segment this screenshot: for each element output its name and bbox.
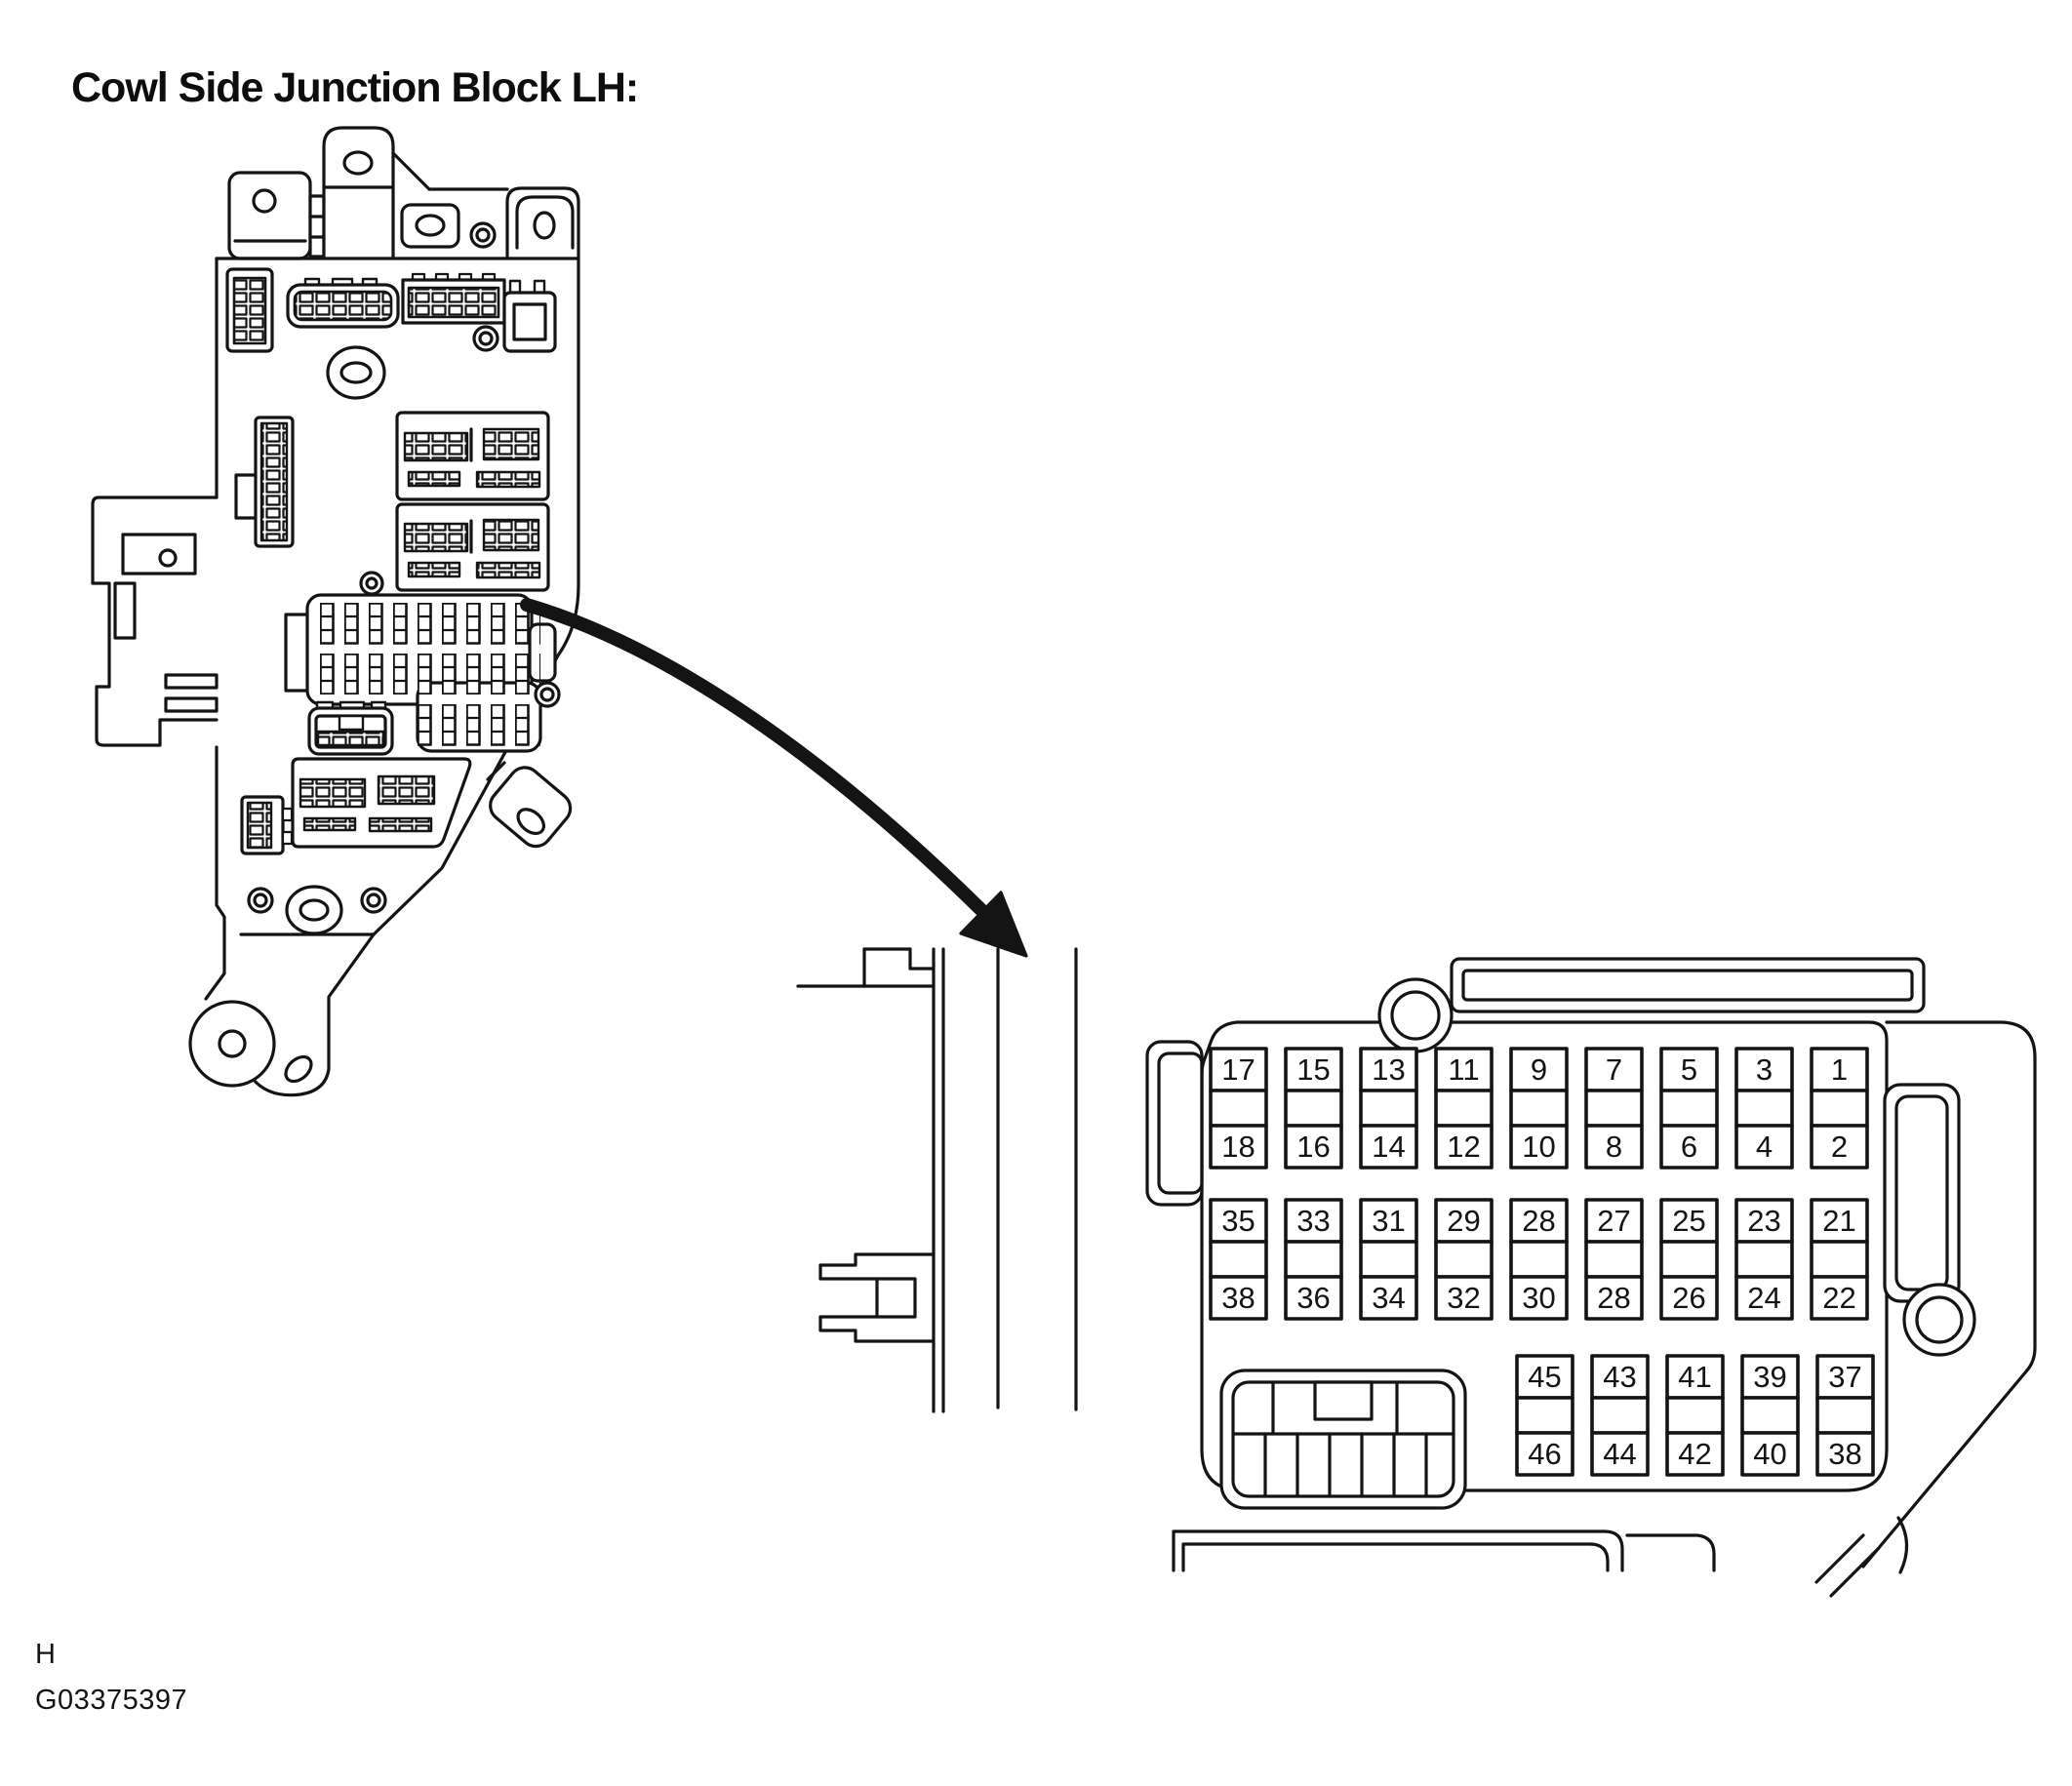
oval-boss: [328, 347, 384, 398]
fuse-column: 1516: [1286, 1049, 1341, 1168]
fuse-column: 1314: [1361, 1049, 1416, 1168]
junction-block-overview-drawing: [93, 128, 578, 1095]
fuse-number: 15: [1296, 1052, 1330, 1087]
footer-figure-code: G03375397: [35, 1685, 187, 1717]
fuse-number: 3: [1756, 1052, 1773, 1087]
fuse-column: 3336: [1286, 1200, 1341, 1319]
mounting-tab-top-left: [229, 173, 310, 258]
fuse-number: 32: [1447, 1281, 1480, 1315]
fuse-number: 38: [1221, 1281, 1255, 1315]
fuse-column: 3538: [1211, 1200, 1266, 1319]
fuse-column: 4142: [1667, 1356, 1723, 1475]
fuse-column: 4546: [1517, 1356, 1573, 1475]
fuse-column: 2526: [1661, 1200, 1717, 1319]
fuse-number: 28: [1522, 1204, 1555, 1238]
fuse-number: 9: [1531, 1052, 1547, 1087]
fuse-number: 35: [1221, 1204, 1255, 1238]
fuse-number: 10: [1522, 1130, 1555, 1164]
fuse-column: 56: [1661, 1049, 1717, 1168]
fuse-number: 4: [1756, 1130, 1773, 1164]
bolt-hole-right: [1904, 1285, 1974, 1355]
connector-block-3: [293, 759, 470, 847]
fuse-number: 27: [1597, 1204, 1630, 1238]
fuse-number: 36: [1296, 1281, 1330, 1315]
fuse-number: 39: [1753, 1360, 1786, 1394]
fuse-number: 17: [1221, 1052, 1255, 1087]
connector-small-left: [227, 269, 272, 351]
diagram-canvas: 1718151613141112910785634123538333631342…: [0, 0, 2072, 1786]
fuse-number: 6: [1681, 1130, 1697, 1164]
fuse-number: 34: [1372, 1281, 1405, 1315]
angled-edge: [393, 153, 429, 189]
fuse-number: 41: [1678, 1360, 1711, 1394]
fuse-number: 26: [1672, 1281, 1705, 1315]
mounting-tab-top-right: [507, 188, 578, 257]
fuse-column: 2324: [1736, 1200, 1792, 1319]
fuse-number: 13: [1372, 1052, 1405, 1087]
right-ear-tab: [1885, 1085, 1959, 1301]
connector-strip-left: [236, 417, 293, 546]
side-bracket: [93, 497, 217, 745]
fuse-number: 8: [1606, 1130, 1622, 1164]
fuse-column: 4344: [1592, 1356, 1648, 1475]
fuse-number: 30: [1522, 1281, 1555, 1315]
fuse-number: 25: [1672, 1204, 1705, 1238]
connector-block-1: [397, 413, 548, 499]
connector-mid: [288, 279, 398, 327]
fuse-number: 5: [1681, 1052, 1697, 1087]
fuse-column: 1112: [1436, 1049, 1492, 1168]
ladder-detail: [310, 196, 324, 257]
fuse-column: 2830: [1511, 1200, 1567, 1319]
panel-edge-lines: [934, 949, 1076, 1411]
zoom-arrow: [527, 605, 1026, 956]
fuse-column: 2728: [1586, 1200, 1642, 1319]
fuse-number: 23: [1747, 1204, 1780, 1238]
connector-wide: [403, 274, 504, 323]
connector-low-small: [309, 702, 392, 754]
fuse-number: 1: [1831, 1052, 1848, 1087]
fuse-number: 2: [1831, 1130, 1848, 1164]
fuse-number: 37: [1828, 1360, 1861, 1394]
fuse-number: 18: [1221, 1130, 1255, 1164]
fuse-number: 33: [1296, 1204, 1330, 1238]
fuse-number: 43: [1603, 1360, 1636, 1394]
connector-block-2: [397, 504, 548, 590]
fuse-column: 2122: [1812, 1200, 1867, 1319]
panel-clip-lower: [820, 1254, 934, 1341]
key-tab: [484, 761, 577, 853]
left-ear-tab: [1147, 1042, 1202, 1205]
fuse-number: 29: [1447, 1204, 1480, 1238]
fuse-number: 31: [1372, 1204, 1405, 1238]
grommet-small: [474, 327, 498, 350]
fuse-number: 28: [1597, 1281, 1630, 1315]
mounting-tab-tall: [324, 128, 393, 258]
connector-cup: [504, 281, 555, 351]
bolt-hole-top: [1379, 979, 1452, 1052]
fuse-number: 42: [1678, 1437, 1711, 1471]
fuse-number: 44: [1603, 1437, 1636, 1471]
fuse-column: 2932: [1436, 1200, 1492, 1319]
fuse-column: 3940: [1742, 1356, 1798, 1475]
service-manual-page: Cowl Side Junction Block LH:: [0, 0, 2072, 1786]
connector-tiny: [242, 797, 292, 853]
fuse-number: 11: [1448, 1052, 1479, 1087]
fuse-column: 3134: [1361, 1200, 1416, 1319]
fuse-number: 24: [1747, 1281, 1780, 1315]
top-rail: [1452, 959, 1924, 1012]
fuse-number: 14: [1372, 1130, 1405, 1164]
fuse-number: 7: [1606, 1052, 1622, 1087]
fuse-number: 45: [1528, 1360, 1561, 1394]
fuse-number: 21: [1822, 1204, 1855, 1238]
fuse-column: 3738: [1817, 1356, 1873, 1475]
fuse-number: 38: [1828, 1437, 1861, 1471]
fuse-number: 12: [1447, 1130, 1480, 1164]
fuse-column: 34: [1736, 1049, 1792, 1168]
fuse-number: 22: [1822, 1281, 1855, 1315]
fuse-panel-detail-drawing: 1718151613141112910785634123538333631342…: [798, 949, 2035, 1596]
footer-page-marker: H: [35, 1639, 56, 1671]
lower-panel-edge: [1174, 1531, 1714, 1570]
fuse-number: 46: [1528, 1437, 1561, 1471]
fuse-number: 40: [1753, 1437, 1786, 1471]
mounting-foot: [190, 934, 374, 1095]
fuse-column: 1718: [1211, 1049, 1266, 1168]
fuse-column: 910: [1511, 1049, 1567, 1168]
panel-bracket-top: [798, 949, 934, 986]
multi-pin-connector: [1221, 1370, 1465, 1508]
fuse-column: 78: [1586, 1049, 1642, 1168]
fuse-column: 12: [1812, 1049, 1867, 1168]
bottom-grommets: [249, 887, 385, 933]
fuse-number: 16: [1296, 1130, 1330, 1164]
top-plate-features: [402, 205, 495, 247]
